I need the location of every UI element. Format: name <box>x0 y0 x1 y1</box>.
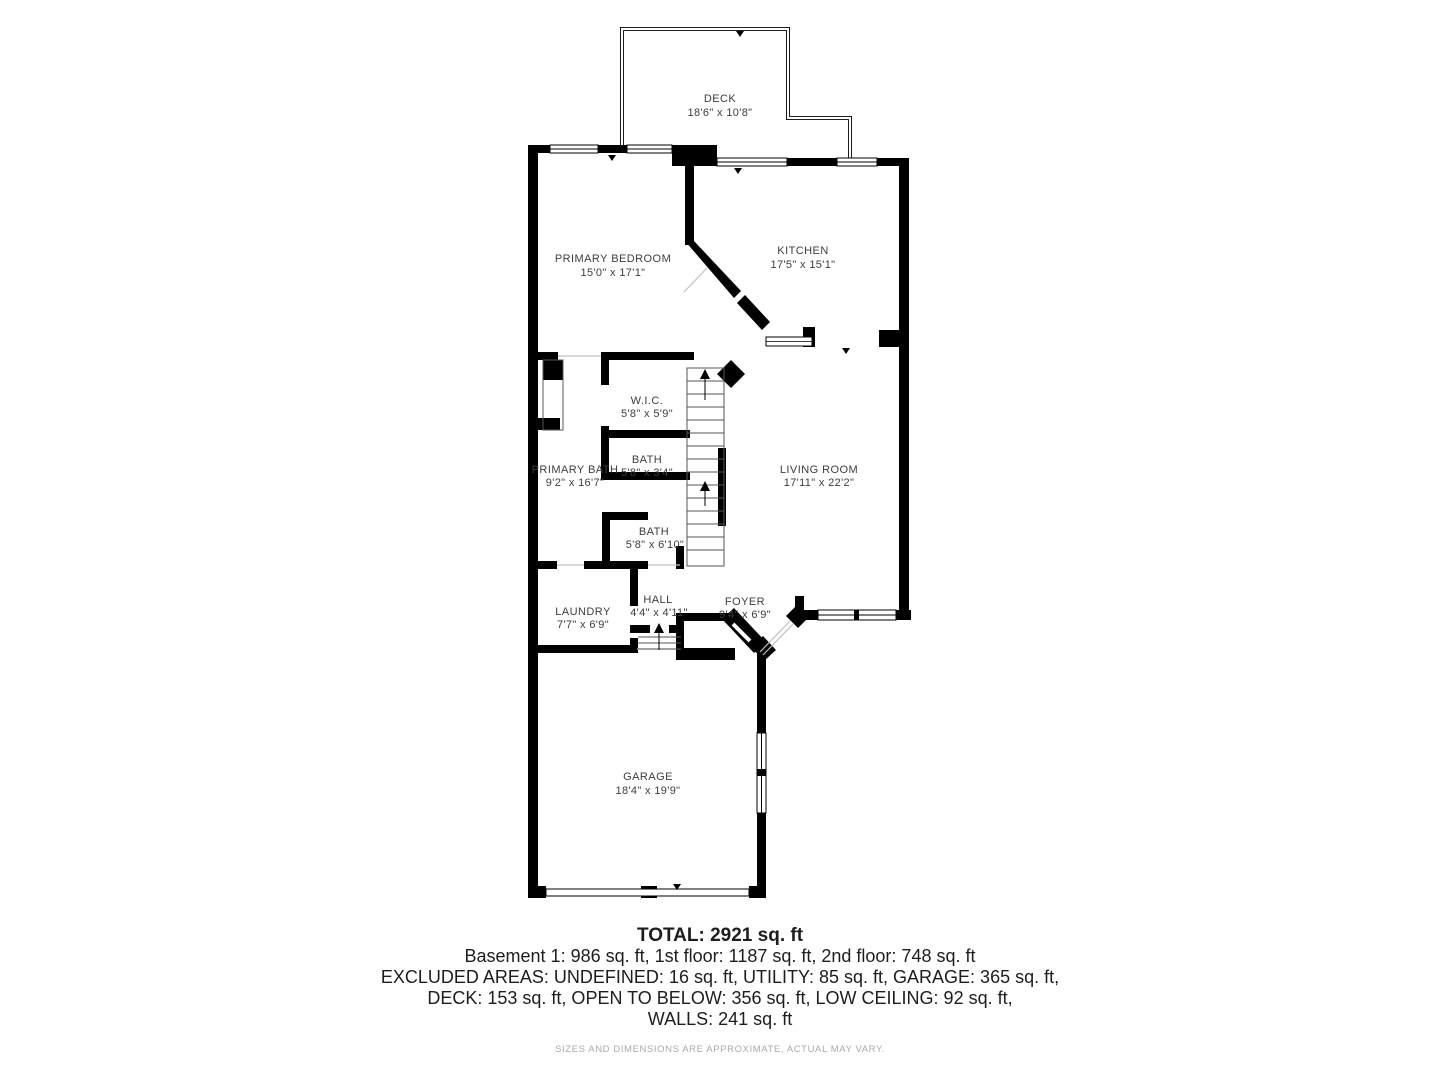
window-bedroom-1 <box>550 145 598 153</box>
room-dims-wic: 5'8" x 5'9" <box>621 408 673 420</box>
room-dims-kitchen: 17'5" x 15'1" <box>771 259 836 271</box>
room-label-wic: W.I.C. <box>631 395 664 407</box>
wall-left <box>528 145 538 898</box>
room-labels: DECK 18'6" x 10'8" PRIMARY BEDROOM 15'0"… <box>532 93 859 797</box>
summary-line-walls: WALLS: 241 sq. ft <box>0 1009 1440 1030</box>
summary-line-excluded-1: EXCLUDED AREAS: UNDEFINED: 16 sq. ft, UT… <box>0 967 1440 988</box>
room-label-living-room: LIVING ROOM <box>780 464 858 476</box>
room-dims-living-room: 17'11" x 22'2" <box>784 477 855 489</box>
tick-slider <box>734 168 742 174</box>
room-label-hall: HALL <box>643 594 672 606</box>
wall-bath2-jog-v <box>602 512 610 566</box>
garage-door <box>546 889 749 896</box>
window-kitchen <box>837 158 877 166</box>
floor-plan-svg: DECK 18'6" x 10'8" PRIMARY BEDROOM 15'0"… <box>0 0 1440 1080</box>
slider-door-kitchen <box>717 158 787 166</box>
room-label-kitchen: KITCHEN <box>777 245 828 257</box>
room-label-garage: GARAGE <box>623 771 673 783</box>
counter-kitchen-living <box>766 337 812 346</box>
room-dims-garage: 18'4" x 19'9" <box>616 785 681 797</box>
wall-garage-bottom-left <box>528 886 546 898</box>
wall-shower-corner <box>543 360 563 380</box>
room-dims-bath-1: 5'8" x 3'4" <box>621 467 673 479</box>
room-dims-laundry: 7'7" x 6'9" <box>557 619 609 631</box>
summary-line-floors: Basement 1: 986 sq. ft, 1st floor: 1187 … <box>0 946 1440 967</box>
tick-kitchen-opening <box>842 348 850 354</box>
wall-laundry-hall-divider-a <box>630 561 638 606</box>
room-label-bath-2: BATH <box>639 526 669 538</box>
wall-bedroom-bottom-b <box>601 352 694 360</box>
wall-diagonal-lower <box>737 295 770 330</box>
tick-bedroom-wall <box>608 155 616 161</box>
door-front-entry-b <box>763 624 793 655</box>
wall-diagonal-upper <box>685 241 741 298</box>
room-dims-deck: 18'6" x 10'8" <box>688 107 753 119</box>
wall-divider-bedroom-kitchen <box>685 153 694 245</box>
room-label-laundry: LAUNDRY <box>555 606 611 618</box>
summary-total: TOTAL: 2921 sq. ft <box>0 925 1440 946</box>
window-bedroom-2 <box>627 145 672 153</box>
wall-laundry-top-a <box>528 561 557 569</box>
wall-stair-top-diamond <box>717 360 745 388</box>
wall-foyer-closet-bottom <box>676 648 735 660</box>
room-label-bath-1: BATH <box>632 454 662 466</box>
wall-right <box>899 158 909 620</box>
window-living-bottom <box>818 610 896 620</box>
wall-shower-nub <box>538 418 560 430</box>
summary-line-excluded-2: DECK: 153 sq. ft, OPEN TO BELOW: 356 sq.… <box>0 988 1440 1009</box>
disclaimer-text: SIZES AND DIMENSIONS ARE APPROXIMATE, AC… <box>0 1044 1440 1055</box>
floor-plan: DECK 18'6" x 10'8" PRIMARY BEDROOM 15'0"… <box>0 0 1440 1080</box>
wall-stair-right <box>718 448 726 526</box>
wall-wic-left-a <box>601 352 609 385</box>
tick-deck <box>736 31 744 37</box>
room-label-deck: DECK <box>704 93 737 105</box>
room-dims-primary-bedroom: 15'0" x 17'1" <box>581 267 646 279</box>
door-bedroom-leaf <box>684 268 707 292</box>
wall-garage-top <box>528 645 637 653</box>
room-label-primary-bath: PRIMARY BATH <box>532 464 619 476</box>
window-garage-right <box>757 733 766 813</box>
wall-garage-bottom-right <box>749 886 766 898</box>
room-dims-primary-bath: 9'2" x 16'7" <box>546 477 604 489</box>
area-summary: TOTAL: 2921 sq. ft Basement 1: 986 sq. f… <box>0 925 1440 1030</box>
wall-right-protrusion <box>879 330 900 347</box>
wall-basement-stair-jamb-l <box>630 625 650 633</box>
door-front-entry-a <box>760 621 790 652</box>
room-label-primary-bedroom: PRIMARY BEDROOM <box>555 253 671 265</box>
room-dims-foyer: 9'4" x 6'9" <box>719 609 771 621</box>
wall-laundry-top-b <box>584 561 648 569</box>
room-dims-bath-2: 5'8" x 6'10" <box>626 539 684 551</box>
room-label-foyer: FOYER <box>725 596 765 608</box>
wall-bedroom-bottom-a <box>528 352 558 360</box>
room-dims-hall: 4'4" x 4'11" <box>630 607 688 619</box>
wall-wic-bottom <box>601 430 690 438</box>
